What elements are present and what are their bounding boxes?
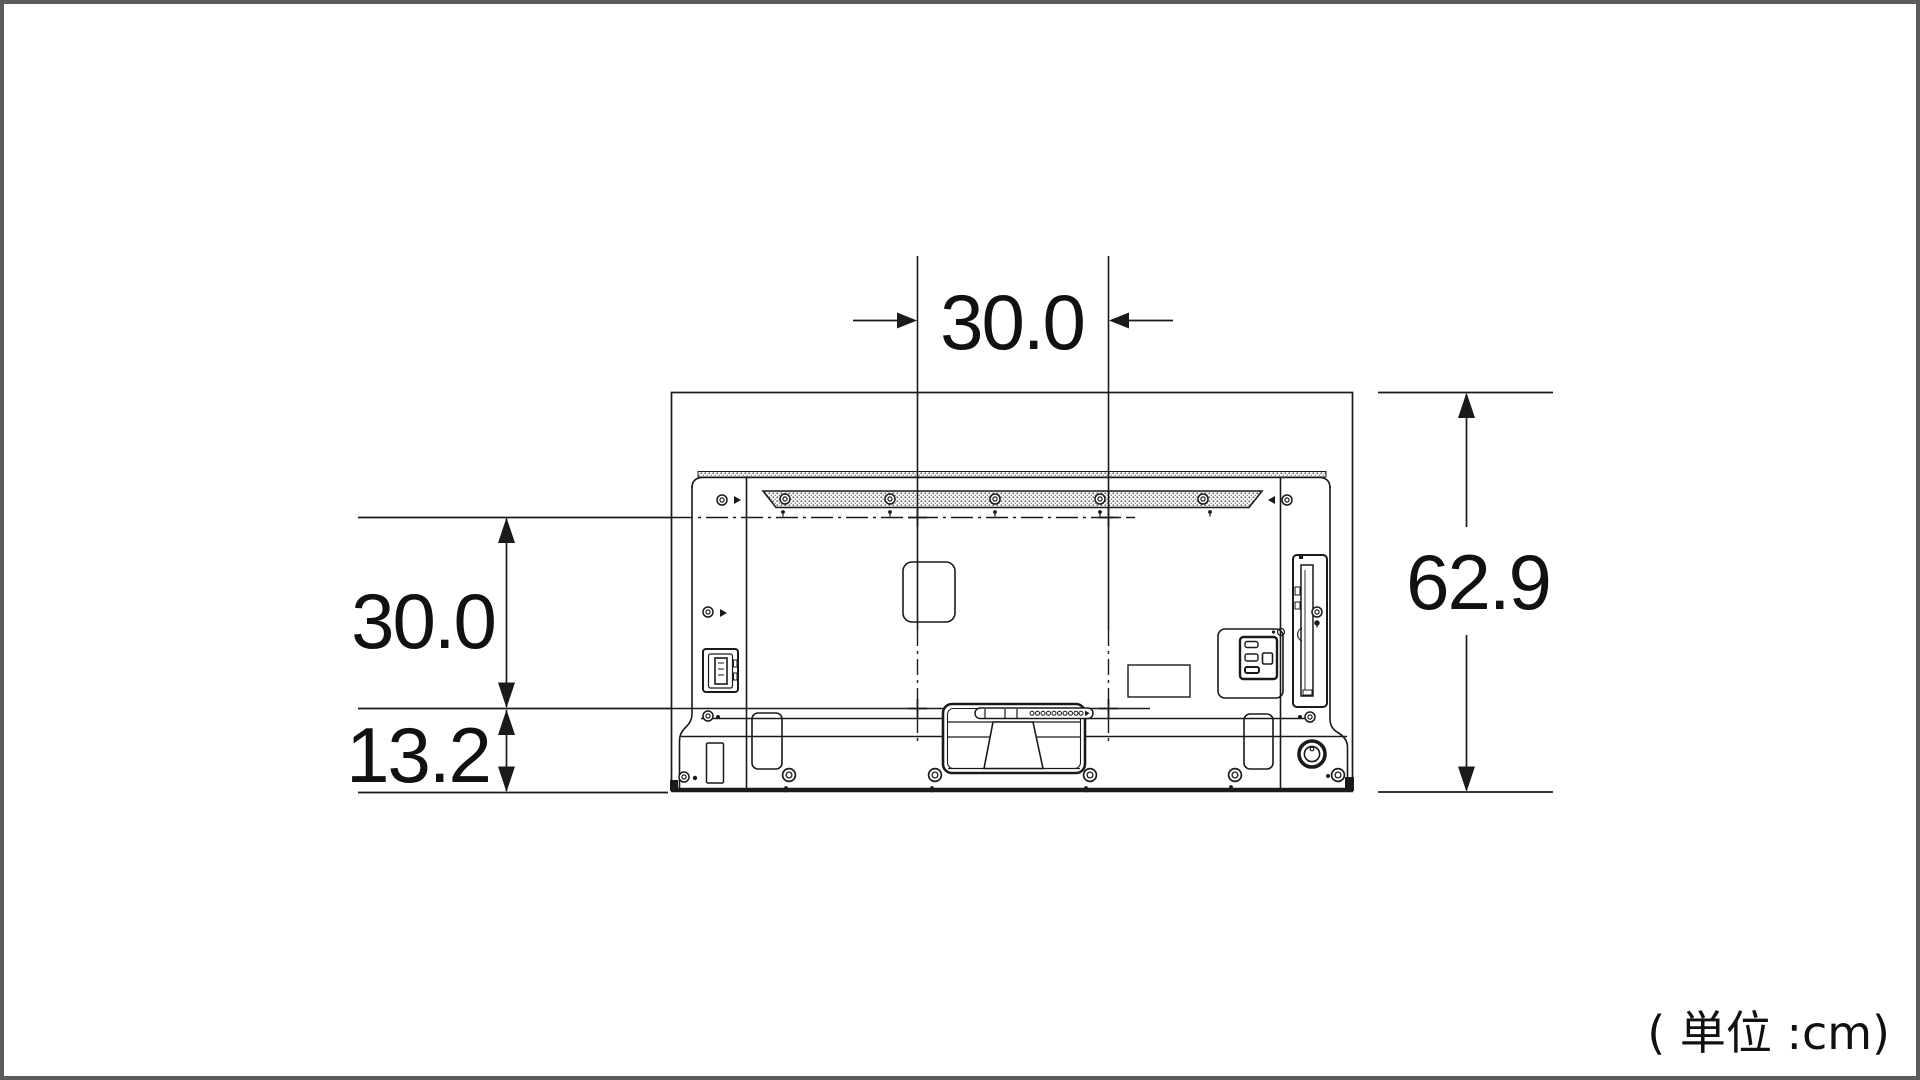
- terminal-square-port: [1263, 653, 1273, 664]
- screw-icon: [929, 769, 942, 782]
- dimension-label-top-width: 30.0: [862, 281, 1162, 363]
- vent-strip-shape: [763, 491, 1262, 508]
- left-card-slot: [752, 713, 782, 769]
- vent-screw-icon: [885, 494, 895, 504]
- arrow-up-icon: [1458, 393, 1475, 419]
- arrow-mark-icon: [1268, 496, 1275, 504]
- dimension-label-left-height: 30.0: [273, 580, 573, 662]
- screw-icon: [1282, 495, 1292, 505]
- rating-label: [1128, 665, 1190, 697]
- pin-dot: [1326, 774, 1330, 778]
- power-connector: [1299, 741, 1325, 767]
- stand-neck: [984, 722, 1043, 769]
- vent-screw-icon: [1095, 494, 1105, 504]
- terminal-slot: [1245, 654, 1258, 661]
- screw-icon: [703, 607, 713, 617]
- screw-icon: [1305, 712, 1315, 722]
- vent-strip: [763, 491, 1262, 517]
- pin-dot: [940, 788, 943, 791]
- left-connector-panel: [703, 649, 738, 692]
- tv-left-foot-tab: [670, 780, 678, 791]
- arrow-up-icon: [498, 518, 515, 544]
- terminal-slot: [1245, 667, 1259, 673]
- right-card-slot: [1244, 714, 1273, 769]
- terminal-panel: [1218, 629, 1285, 699]
- arrow-down-icon: [498, 683, 515, 709]
- screw-icon: [1332, 769, 1345, 782]
- bottom-left-switch: [707, 743, 724, 783]
- cover-right-edge: [1330, 486, 1348, 788]
- pin-dot: [716, 715, 720, 719]
- screw-icon: [679, 772, 689, 782]
- pin-dot: [693, 776, 697, 780]
- arrow-mark-icon: [720, 609, 727, 617]
- screw-icon: [703, 711, 713, 721]
- pin-mark-icon: [1208, 510, 1212, 516]
- tv-rear-dimension-diagram: 30.0 30.0 13.2 62.9 ( 単位 :cm): [0, 0, 1920, 1080]
- dimension-label-bottom-offset: 13.2: [268, 714, 568, 796]
- pin-mark-icon: [888, 510, 892, 516]
- unit-note: ( 単位 :cm): [1560, 1004, 1890, 1062]
- arrow-down-icon: [1458, 767, 1475, 793]
- vent-screw-icon: [1198, 494, 1208, 504]
- vent-screw-icon: [990, 494, 1000, 504]
- pin-mark-icon: [781, 510, 785, 516]
- stand-vent-capsule: [975, 708, 1093, 719]
- center-plate: [903, 562, 955, 622]
- pin-mark-icon: [993, 510, 997, 516]
- diagram-line-art: [0, 0, 1920, 1080]
- cover-top-knurl-strip: [698, 472, 1326, 478]
- vesa-hole-cross-marks: [908, 508, 1118, 718]
- dimension-label-total-height: 62.9: [1328, 541, 1628, 623]
- vent-screw-icon: [780, 494, 790, 504]
- tv-right-foot-tab: [1345, 777, 1354, 791]
- stand-base: [943, 704, 1093, 773]
- cover-left-edge: [680, 486, 693, 788]
- pin-mark-icon: [1098, 510, 1102, 516]
- screw-icon: [1229, 769, 1242, 782]
- right-side-slot-panel: [1293, 555, 1327, 707]
- screw-icon: [1084, 769, 1097, 782]
- arrow-mark-icon: [734, 496, 741, 504]
- pin-dot: [794, 788, 797, 791]
- screw-icon: [717, 495, 727, 505]
- cover-top-edge: [692, 478, 1330, 489]
- pin-dot: [1094, 788, 1097, 791]
- screw-icon: [783, 769, 796, 782]
- pin-dot: [1298, 715, 1302, 719]
- terminal-slot: [1245, 642, 1258, 648]
